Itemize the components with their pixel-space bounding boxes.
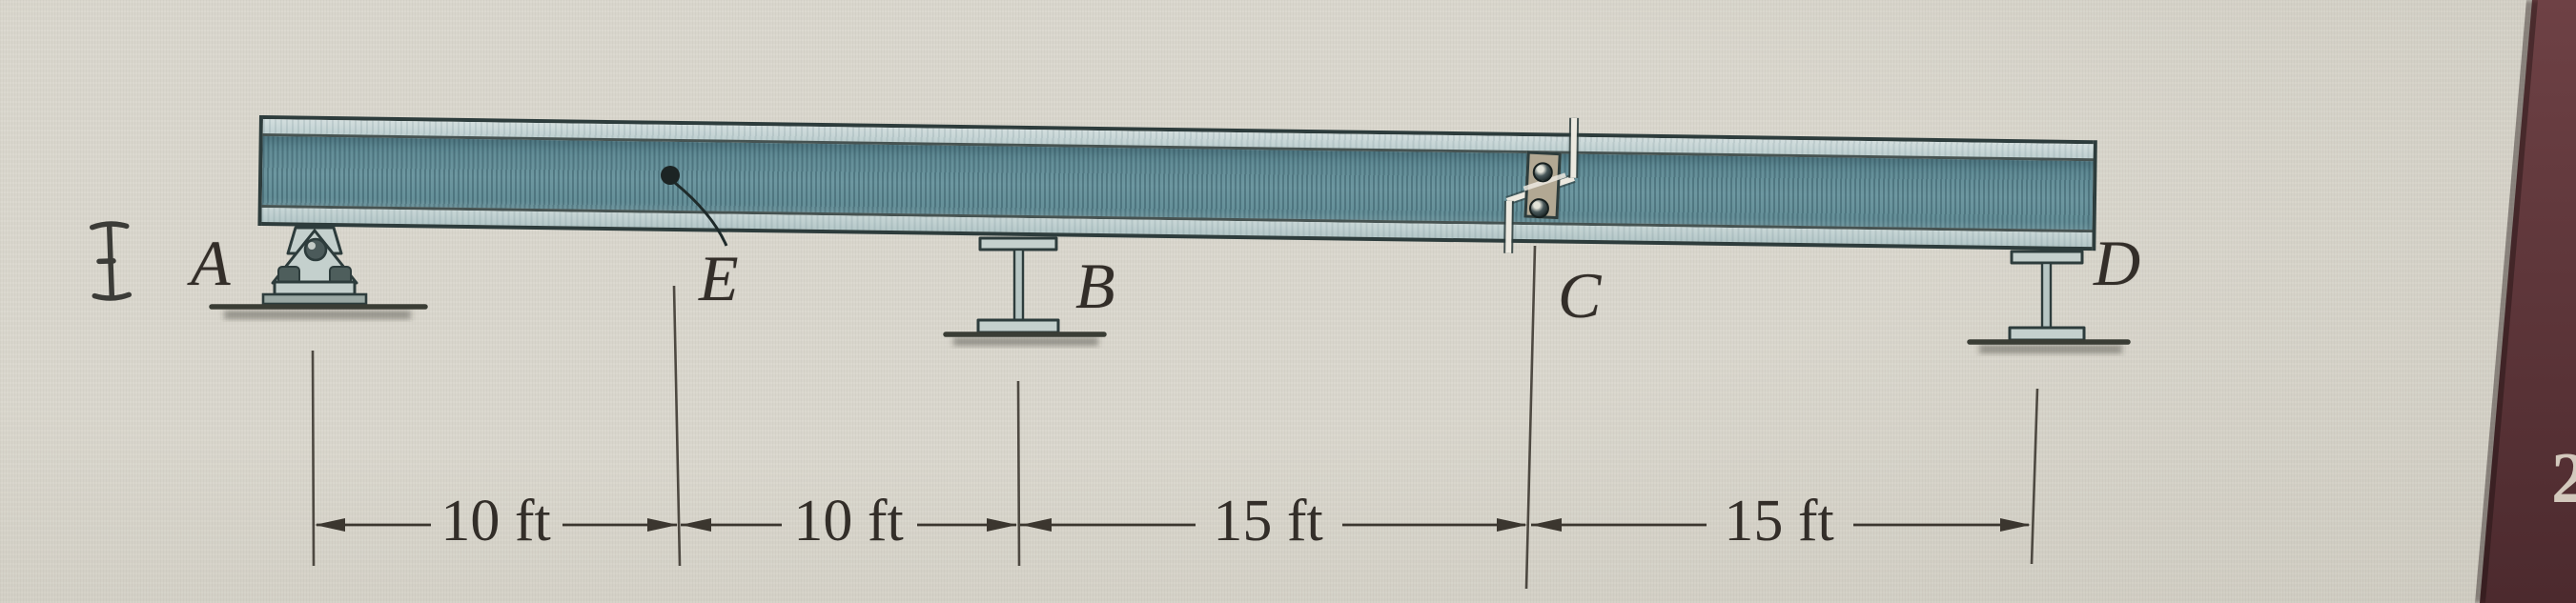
extension-line-c bbox=[1526, 246, 1535, 589]
point-label-d: D bbox=[2094, 231, 2140, 295]
point-label-c: C bbox=[1558, 263, 1601, 328]
dim-label-e-b: 10 ft bbox=[793, 489, 903, 553]
extension-line-a bbox=[313, 351, 314, 566]
extension-line-d bbox=[2032, 389, 2037, 564]
point-label-b: B bbox=[1075, 253, 1115, 318]
pin-support-icon bbox=[212, 228, 425, 319]
leader-line bbox=[675, 183, 726, 246]
dim-label-c-d: 15 ft bbox=[1724, 489, 1833, 553]
dim-label-a-e: 10 ft bbox=[440, 489, 550, 553]
point-label-a: A bbox=[191, 231, 231, 295]
page-number: 2 bbox=[2551, 440, 2576, 516]
margin-i-beam-glyph bbox=[92, 223, 130, 298]
point-marker-dot-icon bbox=[661, 166, 680, 185]
extension-line-b bbox=[1018, 381, 1019, 566]
point-label-e: E bbox=[699, 246, 739, 311]
textbook-figure-photo: A E B C D 10 ft 10 ft 15 ft 15 ft 2 bbox=[0, 0, 2576, 603]
pin-icon bbox=[305, 239, 326, 260]
dim-label-b-c: 15 ft bbox=[1213, 489, 1322, 553]
